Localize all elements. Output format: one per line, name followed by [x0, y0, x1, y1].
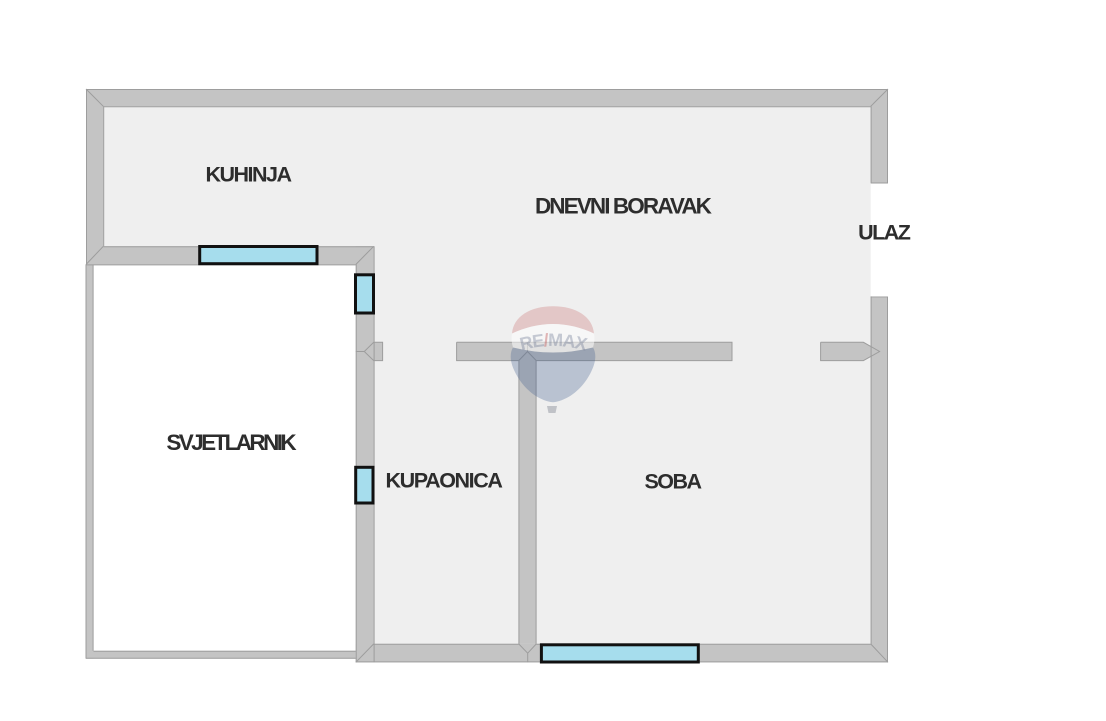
- svg-text:ULAZ: ULAZ: [858, 221, 911, 245]
- svg-text:DNEVNI BORAVAK: DNEVNI BORAVAK: [535, 193, 713, 218]
- svg-text:KUPAONICA: KUPAONICA: [385, 469, 502, 493]
- svg-text:KUHINJA: KUHINJA: [205, 163, 291, 187]
- svg-text:SVJETLARNIK: SVJETLARNIK: [166, 430, 297, 455]
- svg-text:SOBA: SOBA: [644, 470, 701, 494]
